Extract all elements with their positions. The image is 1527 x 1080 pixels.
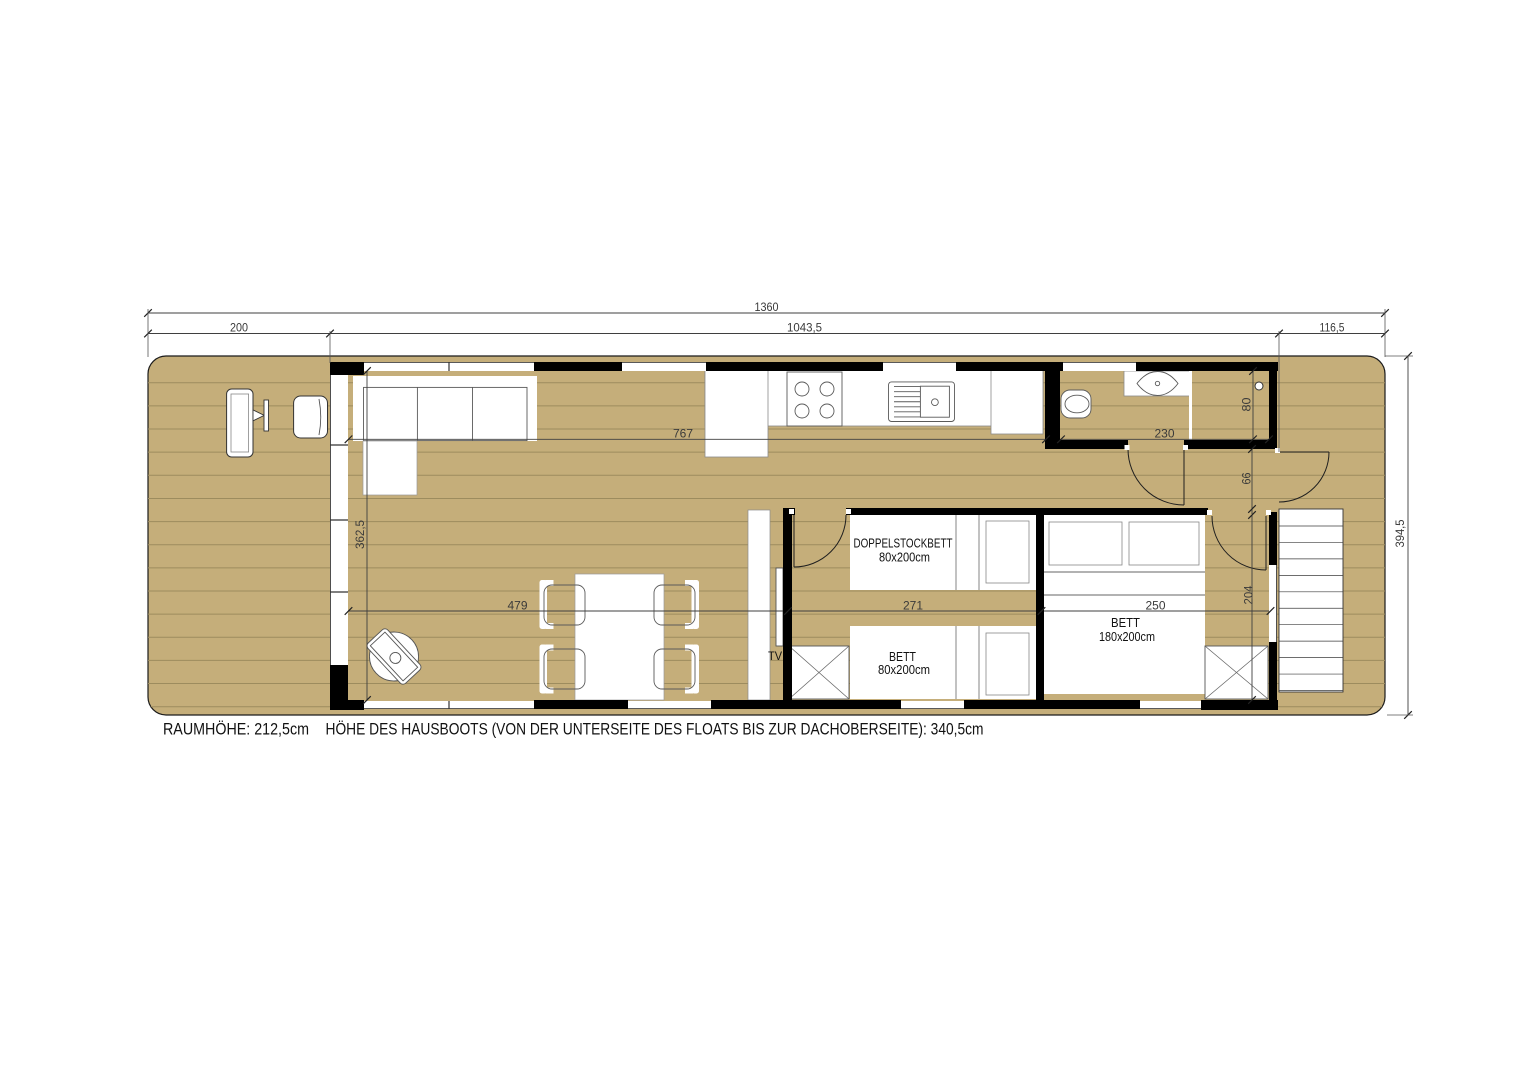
svg-text:200: 200 (230, 321, 248, 335)
svg-text:80: 80 (1240, 397, 1254, 411)
svg-text:204: 204 (1242, 585, 1256, 604)
svg-text:1043,5: 1043,5 (787, 321, 822, 335)
svg-text:1360: 1360 (755, 300, 779, 314)
svg-text:767: 767 (673, 427, 693, 441)
svg-text:394,5: 394,5 (1393, 519, 1407, 547)
svg-text:271: 271 (903, 599, 923, 613)
svg-text:479: 479 (508, 599, 528, 613)
svg-text:DOPPELSTOCKBETT: DOPPELSTOCKBETT (854, 536, 953, 551)
svg-text:230: 230 (1155, 427, 1175, 441)
svg-text:RAUMHÖHE: 212,5cm: RAUMHÖHE: 212,5cm (163, 720, 309, 739)
svg-text:80x200cm: 80x200cm (878, 662, 930, 677)
svg-text:180x200cm: 180x200cm (1099, 629, 1155, 644)
svg-text:BETT: BETT (1111, 615, 1140, 630)
svg-text:250: 250 (1146, 599, 1166, 613)
svg-text:66: 66 (1240, 472, 1254, 484)
svg-text:TV: TV (768, 649, 782, 663)
svg-text:80x200cm: 80x200cm (879, 550, 930, 565)
svg-text:HÖHE DES HAUSBOOTS (VON DER UN: HÖHE DES HAUSBOOTS (VON DER UNTERSEITE D… (326, 720, 984, 739)
svg-text:116,5: 116,5 (1320, 321, 1345, 335)
svg-text:362,5: 362,5 (353, 520, 367, 549)
